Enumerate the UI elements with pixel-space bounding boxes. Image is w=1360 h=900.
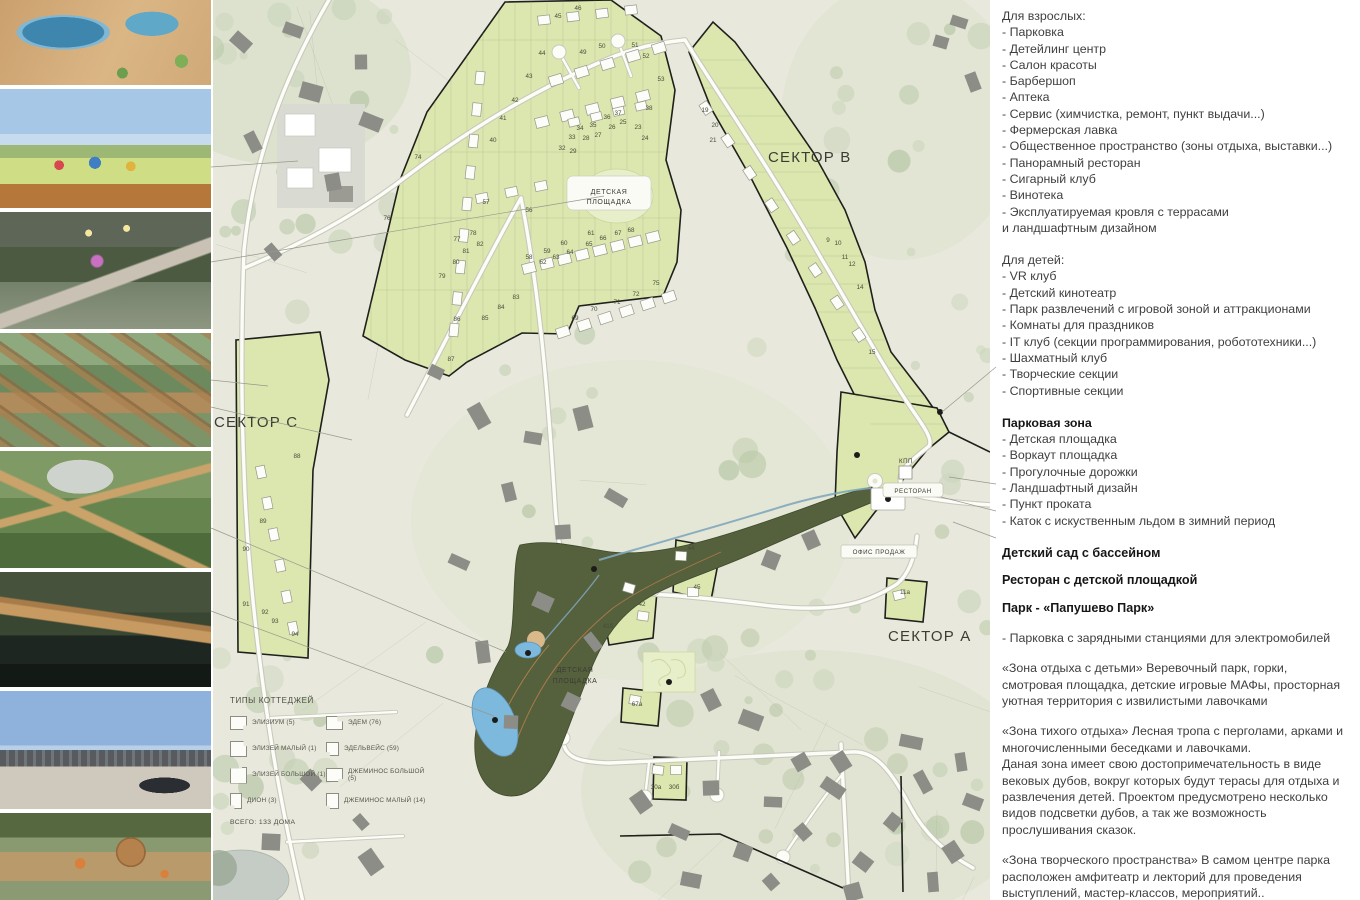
svg-text:70: 70 — [590, 306, 598, 313]
svg-text:34: 34 — [576, 125, 584, 132]
svg-text:45: 45 — [693, 584, 701, 591]
legend-item: ДЖЕМИНОС БОЛЬШОЙ (5) — [326, 763, 426, 787]
checkpoint-label: КПП — [899, 458, 913, 465]
svg-text:72: 72 — [632, 291, 640, 298]
svg-text:86: 86 — [453, 316, 461, 323]
legend-item: ЭДЕЛЬВЕЙС (59) — [326, 737, 426, 761]
render-photo-aquapark — [0, 0, 211, 85]
sector-a-label: СЕКТОР A — [888, 628, 972, 645]
svg-text:67а: 67а — [632, 701, 643, 708]
list-item: - Сигарный клуб — [1002, 171, 1350, 187]
render-photo-forest-pond — [0, 572, 211, 687]
playground-top-label-1: ДЕТСКАЯ — [591, 189, 628, 196]
svg-text:74: 74 — [414, 154, 422, 161]
svg-text:71: 71 — [613, 299, 621, 306]
playground-parcel-bottom — [643, 652, 695, 692]
svg-text:24: 24 — [641, 135, 649, 142]
sales-office-label: ОФИС ПРОДАЖ — [853, 549, 906, 556]
svg-text:82: 82 — [476, 241, 484, 248]
svg-text:67: 67 — [614, 230, 622, 237]
kindergarten-heading: Детский сад с бассейном — [1002, 545, 1350, 561]
legend-title: ТИПЫ КОТТЕДЖЕЙ — [230, 696, 426, 705]
park-zone-title: Парковая зона — [1002, 415, 1350, 431]
playground-bottom-label-1: ДЕТСКАЯ — [557, 667, 594, 674]
svg-text:93: 93 — [271, 618, 279, 625]
masterplan-board: СЕКТОР B СЕКТОР C СЕКТОР A ДЕТСКАЯ ПЛОЩА… — [0, 0, 1360, 900]
list-item: - Панорамный ресторан — [1002, 155, 1350, 171]
list-item: - Шахматный клуб — [1002, 350, 1350, 366]
list-item: - Барбершоп — [1002, 73, 1350, 89]
svg-text:32: 32 — [558, 145, 566, 152]
list-item: - Салон красоты — [1002, 57, 1350, 73]
svg-text:91: 91 — [242, 601, 250, 608]
svg-text:63: 63 — [552, 254, 560, 261]
legend-total: ВСЕГО: 133 ДОМА — [230, 819, 426, 826]
checkpoint-building — [899, 466, 912, 479]
svg-text:64: 64 — [566, 249, 574, 256]
list-item: - Аптека — [1002, 89, 1350, 105]
legend-grid: ЭЛИЗИУМ (5) ЭЛИЗЕЙ МАЛЫЙ (1) ЭЛИЗЕЙ БОЛЬ… — [230, 711, 426, 813]
svg-text:12: 12 — [848, 261, 856, 268]
svg-text:41б: 41б — [603, 622, 614, 630]
list-item: - Воркаут площадка — [1002, 447, 1350, 463]
photo-sidebar — [0, 0, 211, 900]
svg-text:23: 23 — [634, 124, 642, 131]
render-photo-amphitheater — [0, 333, 211, 447]
svg-text:29: 29 — [569, 148, 577, 155]
paragraph-parking: - Парковка с зарядными станциями для эле… — [1002, 630, 1350, 646]
masterplan-map: СЕКТОР B СЕКТОР C СЕКТОР A ДЕТСКАЯ ПЛОЩА… — [211, 0, 992, 900]
children-block: Для детей: - VR клуб - Детский кинотеатр… — [1002, 252, 1350, 399]
svg-text:92: 92 — [261, 609, 269, 616]
svg-text:58: 58 — [525, 254, 533, 261]
svg-text:19: 19 — [701, 107, 709, 114]
svg-text:21: 21 — [709, 137, 717, 144]
svg-text:83: 83 — [512, 294, 520, 301]
list-item: - Эксплуатируемая кровля с террасами — [1002, 204, 1350, 220]
adults-block: Для взрослых: - Парковка - Детейлинг цен… — [1002, 8, 1350, 236]
svg-text:59: 59 — [543, 248, 551, 255]
playground-top-label-2: ПЛОЩАДКА — [587, 199, 632, 206]
svg-text:78: 78 — [469, 230, 477, 237]
svg-text:76: 76 — [383, 215, 391, 222]
svg-text:88: 88 — [293, 453, 301, 460]
adults-title: Для взрослых: — [1002, 8, 1350, 24]
svg-text:27: 27 — [594, 132, 602, 139]
svg-text:42: 42 — [638, 601, 646, 608]
svg-text:75: 75 — [652, 280, 660, 287]
svg-text:52: 52 — [642, 53, 650, 60]
render-photo-sales-building — [0, 691, 211, 809]
legend-item: ЭДЕМ (76) — [326, 711, 426, 735]
svg-text:79: 79 — [438, 273, 446, 280]
svg-text:14: 14 — [856, 284, 864, 291]
list-item: - Парк развлечений с игровой зоной и атт… — [1002, 301, 1350, 317]
list-item: - IT клуб (секции программирования, робо… — [1002, 334, 1350, 350]
svg-text:30а: 30а — [651, 784, 662, 791]
legend-item: ДЖЕМИНОС МАЛЫЙ (14) — [326, 789, 426, 813]
paragraph-creative-zone: «Зона творческого пространства» В самом … — [1002, 852, 1350, 900]
cottage-types-legend: ТИПЫ КОТТЕДЖЕЙ ЭЛИЗИУМ (5) ЭЛИЗЕЙ МАЛЫЙ … — [230, 696, 426, 826]
svg-text:89: 89 — [259, 518, 267, 525]
svg-text:62: 62 — [539, 259, 547, 266]
restaurant-heading: Ресторан с детской площадкой — [1002, 572, 1350, 588]
info-panel: Для взрослых: - Парковка - Детейлинг цен… — [990, 0, 1360, 900]
legend-item: ЭЛИЗЕЙ БОЛЬШОЙ (1) — [230, 763, 326, 787]
svg-text:42: 42 — [511, 97, 519, 104]
render-photo-play-tower — [0, 813, 211, 900]
cottage-shape-icon — [230, 767, 247, 784]
svg-text:10: 10 — [834, 240, 842, 247]
list-item: - Общественное пространство (зоны отдыха… — [1002, 138, 1350, 154]
svg-text:49: 49 — [579, 49, 587, 56]
svg-text:30б: 30б — [669, 783, 680, 791]
list-item: - Детский кинотеатр — [1002, 285, 1350, 301]
svg-text:61: 61 — [587, 230, 595, 237]
list-item: - Фермерская лавка — [1002, 122, 1350, 138]
svg-text:26: 26 — [608, 124, 616, 131]
list-item: - Прогулочные дорожки — [1002, 464, 1350, 480]
svg-text:53: 53 — [657, 76, 665, 83]
svg-text:45: 45 — [554, 13, 562, 20]
svg-text:57: 57 — [482, 199, 490, 206]
sector-c-label: СЕКТОР C — [214, 414, 298, 431]
svg-text:33: 33 — [568, 134, 576, 141]
svg-text:11а: 11а — [900, 589, 911, 596]
svg-text:25: 25 — [619, 119, 627, 126]
svg-text:65: 65 — [585, 241, 593, 248]
list-item: - Винотека — [1002, 187, 1350, 203]
list-item: - Ландшафтный дизайн — [1002, 480, 1350, 496]
svg-text:51: 51 — [631, 42, 639, 49]
list-item: - VR клуб — [1002, 268, 1350, 284]
svg-text:85: 85 — [481, 315, 489, 322]
list-item: - Творческие секции — [1002, 366, 1350, 382]
children-title: Для детей: — [1002, 252, 1350, 268]
cottage-shape-icon — [230, 716, 247, 730]
svg-text:77: 77 — [453, 236, 461, 243]
list-item: - Детейлинг центр — [1002, 41, 1350, 57]
svg-text:44: 44 — [687, 545, 695, 552]
list-item: - Пункт проката — [1002, 496, 1350, 512]
svg-text:66: 66 — [599, 235, 607, 242]
svg-text:60: 60 — [560, 240, 568, 247]
list-item: - Каток с искуственным льдом в зимний пе… — [1002, 513, 1350, 529]
legend-item: ДИОН (3) — [230, 789, 326, 813]
cottage-shape-icon — [326, 793, 339, 809]
svg-text:28: 28 — [582, 135, 590, 142]
cottage-shape-icon — [230, 793, 242, 809]
svg-text:68: 68 — [627, 227, 635, 234]
svg-text:94: 94 — [291, 631, 299, 638]
restaurant-label: РЕСТОРАН — [894, 488, 931, 495]
cottage-shape-icon — [326, 716, 343, 730]
svg-text:15: 15 — [868, 349, 876, 356]
paragraph-quiet-zone: «Зона тихого отдыха» Лесная тропа с перг… — [1002, 723, 1350, 838]
svg-text:50: 50 — [598, 43, 606, 50]
legend-item: ЭЛИЗЕЙ МАЛЫЙ (1) — [230, 737, 326, 761]
svg-text:43: 43 — [525, 73, 533, 80]
svg-text:20: 20 — [711, 122, 719, 129]
render-photo-boardwalk — [0, 451, 211, 568]
svg-text:46: 46 — [574, 5, 582, 12]
park-heading: Парк - «Папушево Парк» — [1002, 600, 1350, 616]
cottage-shape-icon — [326, 742, 339, 756]
svg-text:44: 44 — [538, 50, 546, 57]
svg-text:69: 69 — [571, 315, 579, 322]
sector-b-label: СЕКТОР B — [768, 149, 852, 166]
svg-text:56: 56 — [525, 207, 533, 214]
svg-text:90: 90 — [242, 546, 250, 553]
cottage-shape-icon — [326, 768, 343, 782]
svg-text:36: 36 — [603, 114, 611, 121]
svg-text:84: 84 — [497, 304, 505, 311]
list-item: - Спортивные секции — [1002, 383, 1350, 399]
svg-text:38: 38 — [645, 105, 653, 112]
list-item: - Детская площадка — [1002, 431, 1350, 447]
render-photo-evening-park — [0, 212, 211, 329]
svg-text:81: 81 — [462, 248, 470, 255]
list-item: и ландшафтным дизайном — [1002, 220, 1350, 236]
playground-bottom-label-2: ПЛОЩАДКА — [553, 678, 598, 685]
svg-text:87: 87 — [447, 356, 455, 363]
render-photo-playground — [0, 89, 211, 208]
list-item: - Парковка — [1002, 24, 1350, 40]
svg-text:11: 11 — [842, 254, 849, 261]
svg-text:35: 35 — [589, 122, 597, 129]
cottage-shape-icon — [230, 741, 247, 757]
svg-text:41: 41 — [499, 115, 507, 122]
paragraph-kids-zone: «Зона отдыха с детьми» Веревочный парк, … — [1002, 660, 1350, 709]
svg-text:80: 80 — [452, 259, 460, 266]
park-zone-block: Парковая зона - Детская площадка - Ворка… — [1002, 415, 1350, 529]
svg-text:9: 9 — [826, 237, 830, 244]
list-item: - Сервис (химчистка, ремонт, пункт выдач… — [1002, 106, 1350, 122]
legend-item: ЭЛИЗИУМ (5) — [230, 711, 326, 735]
svg-text:40: 40 — [489, 137, 497, 144]
svg-text:37: 37 — [614, 110, 622, 117]
list-item: - Комнаты для праздников — [1002, 317, 1350, 333]
